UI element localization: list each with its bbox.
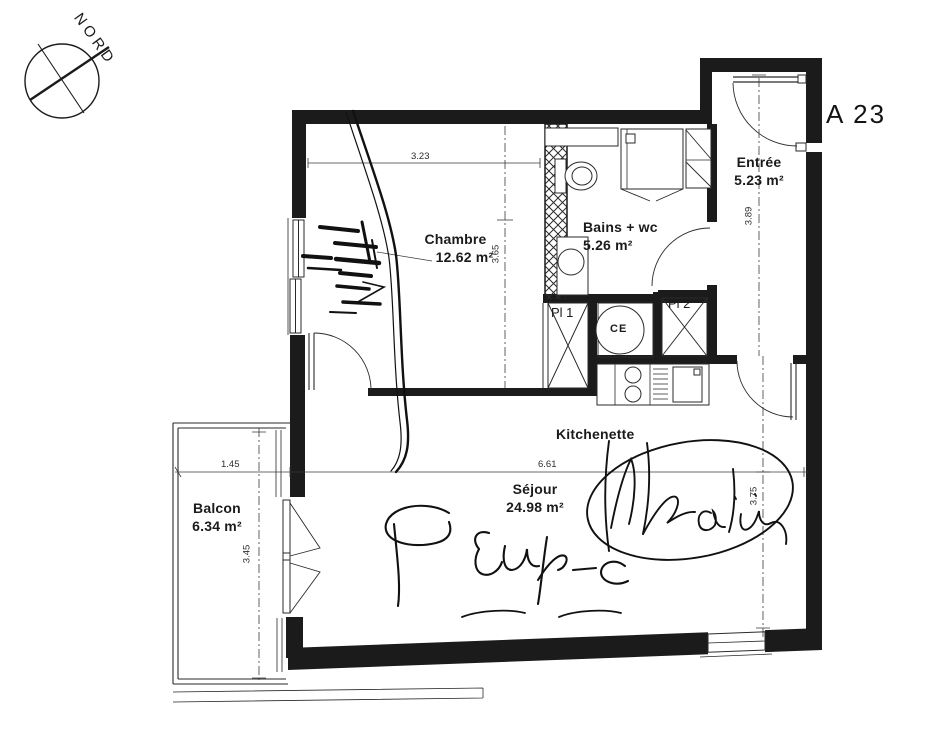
room-label-kitchenette: Kitchenette [556,426,634,444]
kitchenette-counter [597,364,709,405]
room-name: Balcon [183,500,251,518]
room-label-balcon: Balcon 6.34 m² [183,500,251,535]
room-area: 6.34 m² [183,518,251,536]
room-label-entree: Entrée 5.23 m² [726,154,792,189]
room-name: Séjour [495,481,575,499]
toilet-icon [555,159,597,193]
pen-signature-oval [578,425,803,575]
closet-label-pl2: Pl 2 [668,296,690,312]
duct-shaft-icon [686,129,711,188]
dim-sejour-width: 6.61 [538,459,557,471]
room-area: 5.23 m² [726,172,792,190]
floorplan-page: NORD A 23 Chambre 12.62 m² Bains + wc 5.… [0,0,943,736]
unit-label: A 23 [826,98,886,131]
pen-scribble-chambre [303,111,408,472]
room-name: Entrée [726,154,792,172]
closet-label-pl1: Pl 1 [551,305,573,321]
room-label-bains: Bains + wc 5.26 m² [583,219,673,254]
dim-entree-depth: 3.89 [743,207,755,226]
dim-sejour-depth: 3.75 [748,487,760,506]
water-heater-label: CE [610,323,627,337]
dim-chambre-width: 3.23 [411,151,430,163]
pen-signature-sejour [386,506,628,617]
floorplan-drawing [0,0,943,736]
sink-icon [673,367,702,402]
room-area: 5.26 m² [583,237,673,255]
room-area: 24.98 m² [495,499,575,517]
shower-icon [621,129,683,201]
room-label-sejour: Séjour 24.98 m² [495,481,575,516]
dim-chambre-depth: 3.65 [490,245,502,264]
room-name: Bains + wc [583,219,673,237]
dim-balcon-width: 1.45 [221,459,240,471]
dim-balcon-depth: 3.45 [241,545,253,564]
